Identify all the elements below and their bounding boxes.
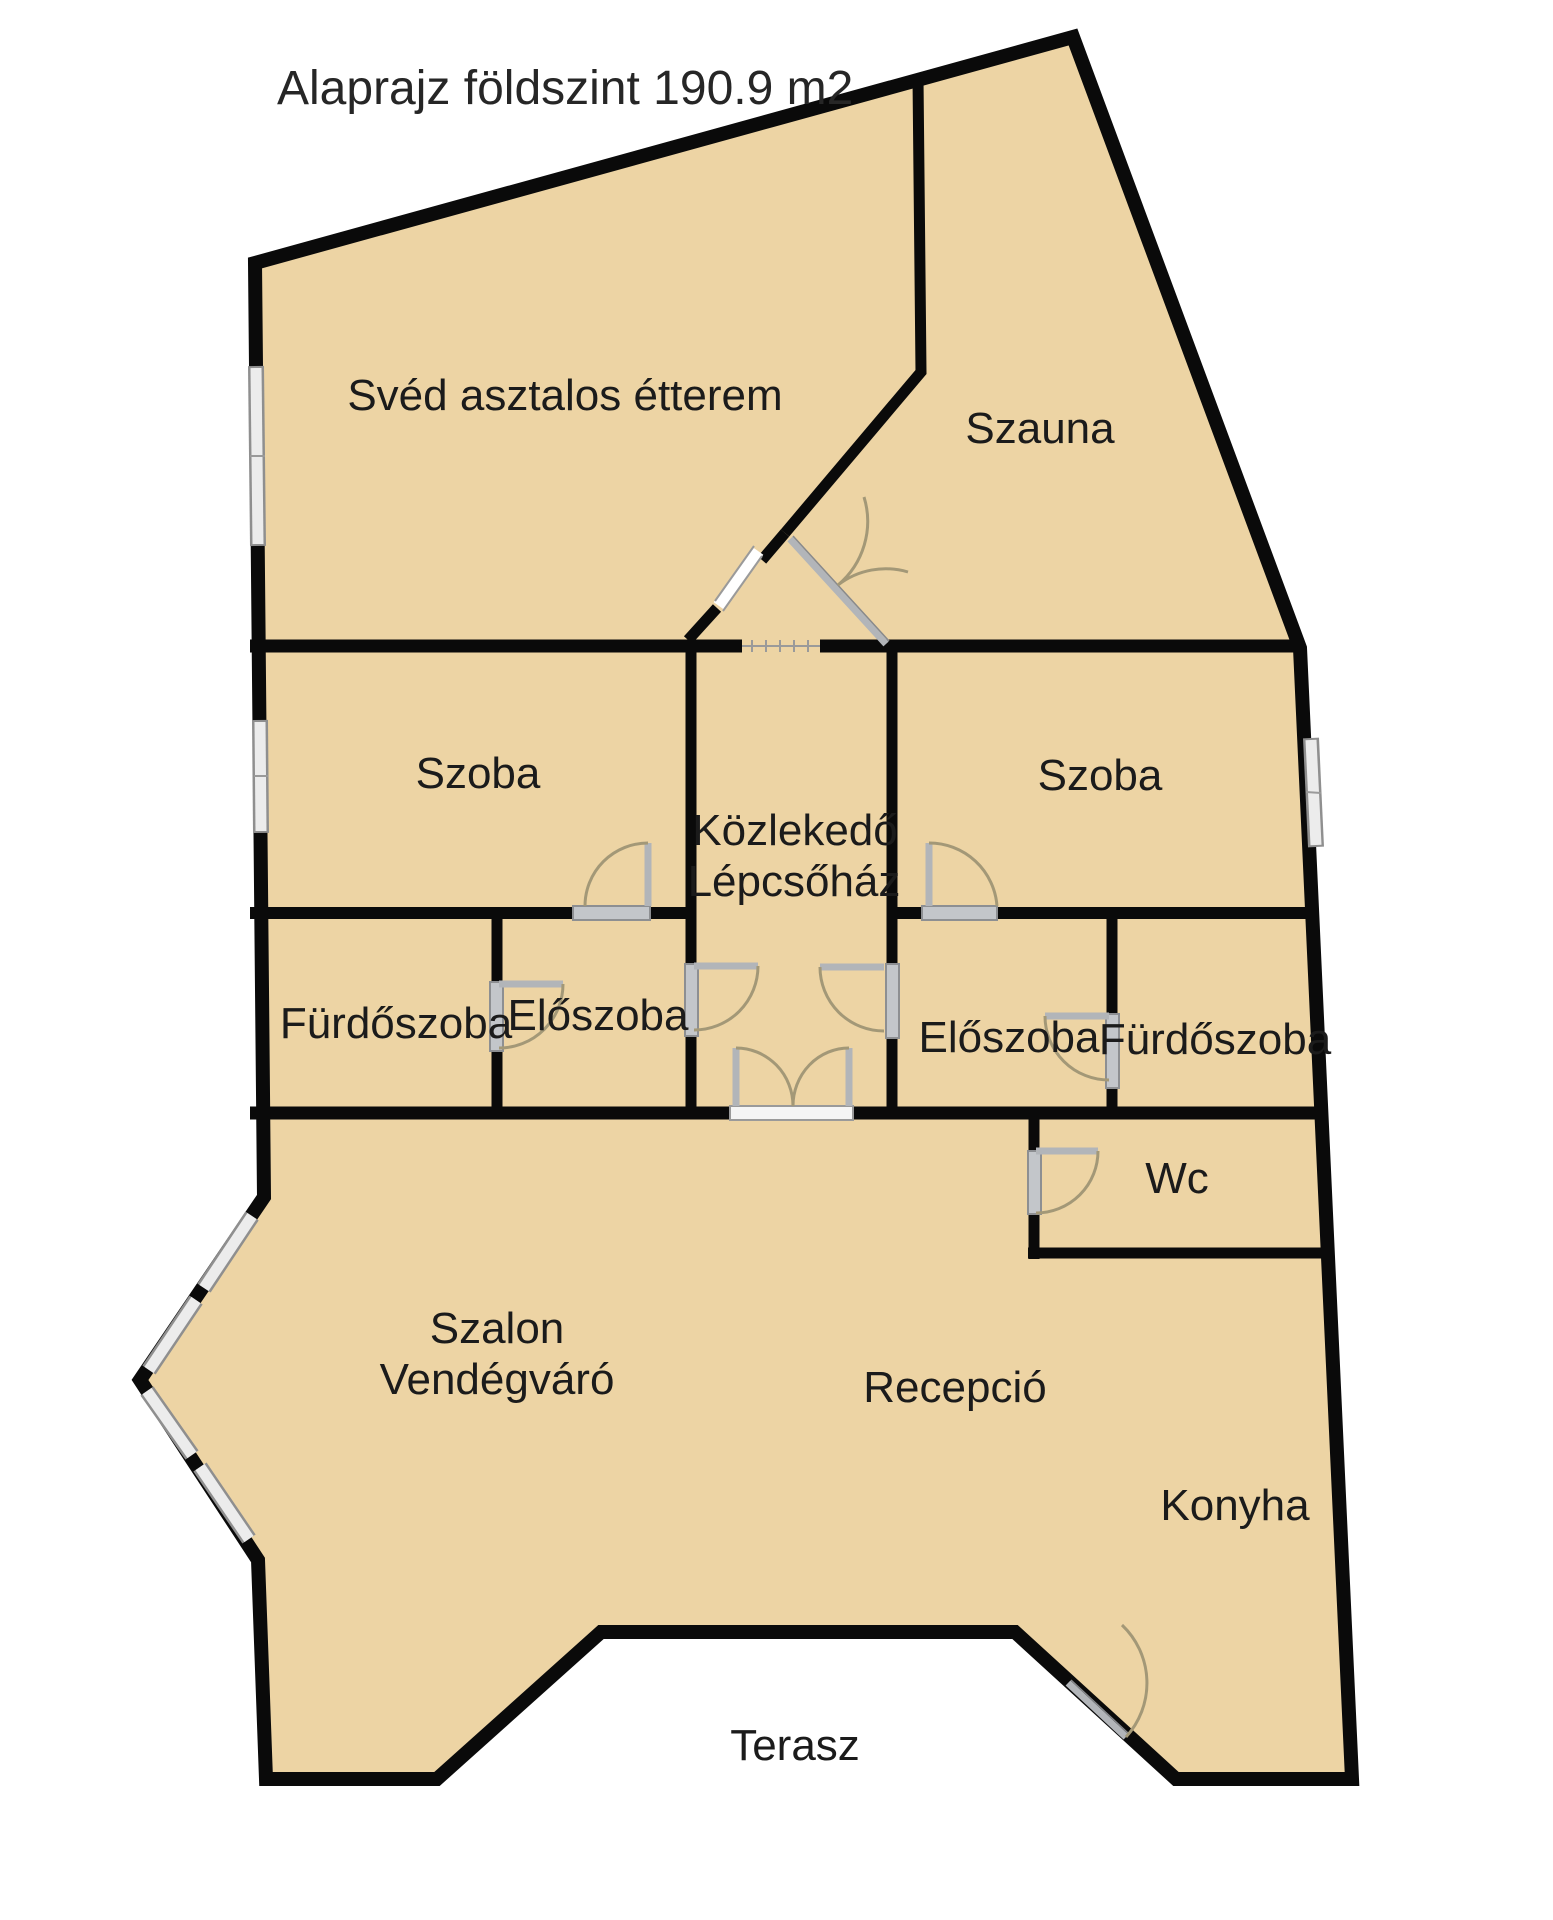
label-etterem: Svéd asztalos étterem [347, 371, 782, 420]
window-szoba-right-tick [1306, 792, 1321, 793]
floor-plan-page: Alaprajz földszint 190.9 m2 Svéd asztalo… [0, 0, 1553, 1920]
label-konyha: Konyha [1160, 1481, 1310, 1530]
label-wc: Wc [1145, 1154, 1209, 1203]
label-furdoszoba-right: Fürdőszoba [1099, 1015, 1332, 1064]
label-szalon-line2: Vendégváró [380, 1355, 615, 1404]
label-szalon-line1: Szalon [430, 1304, 565, 1353]
label-terasz: Terasz [730, 1721, 860, 1770]
label-szoba-left: Szoba [416, 749, 541, 798]
label-szoba-right: Szoba [1038, 751, 1163, 800]
corridor-bottom-door-sill [730, 1106, 853, 1120]
label-eloszoba-right: Előszoba [918, 1013, 1100, 1062]
floor-plan-canvas: Alaprajz földszint 190.9 m2 Svéd asztalo… [0, 0, 1553, 1920]
szoba-left-door-sill [573, 906, 650, 920]
wc-door-sill [1028, 1151, 1041, 1214]
label-furdoszoba-left: Fürdőszoba [280, 999, 513, 1048]
label-eloszoba-left: Előszoba [507, 991, 689, 1040]
corridor-right-door-sill [886, 964, 899, 1038]
label-kozlekedo-line2: Lépcsőház [688, 857, 901, 906]
szoba-right-door-sill [922, 906, 997, 920]
label-kozlekedo-line1: Közlekedő [692, 806, 897, 855]
label-szauna: Szauna [965, 404, 1115, 453]
page-title: Alaprajz földszint 190.9 m2 [277, 62, 853, 115]
label-recepcio: Recepció [863, 1363, 1046, 1412]
